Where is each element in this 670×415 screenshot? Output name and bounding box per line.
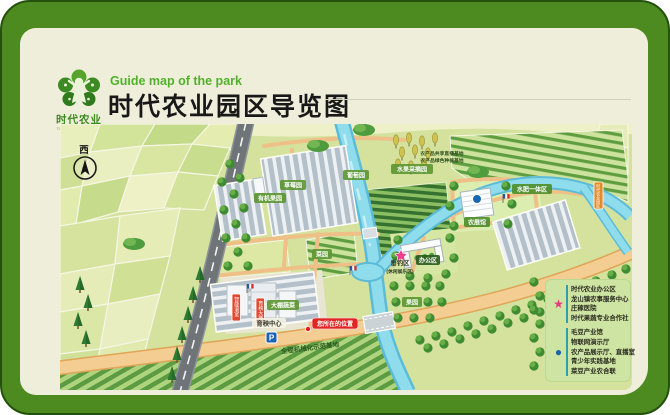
star-icon: ★: [551, 298, 566, 310]
you-are-here-label: 您所在的位置: [317, 320, 353, 328]
agri-hall-label: 农展馆: [467, 219, 486, 227]
agri-hall-building: [460, 188, 493, 219]
map-panel: 时代农业 TIME AGRICULTURE Guide map of the p…: [20, 28, 648, 395]
legend-dot-section: ● 毛豆产业馆 物联网演示厅 农产品展示厅、直播室 青少年实践基地 菜豆产业农合…: [551, 328, 627, 376]
page-title: 时代农业园区导览图: [108, 87, 351, 123]
logo: 时代农业 TIME AGRICULTURE: [52, 68, 106, 131]
park-map-frame: 时代农业 TIME AGRICULTURE Guide map of the p…: [0, 0, 670, 415]
dot-icon: ●: [551, 346, 566, 358]
parking-sign: P: [266, 332, 277, 343]
hall-dot-marker: [473, 195, 482, 204]
legend-item: 毛豆产业馆: [571, 328, 635, 338]
seedling-center-label: 育秧中心: [256, 319, 282, 328]
greenhouse-veg-label: 大棚蔬菜: [271, 302, 296, 310]
parking-label: P: [269, 334, 275, 343]
compass-west-label: 西: [79, 145, 89, 156]
fishing-sub-label: (休闲娱乐区): [386, 268, 414, 275]
foot-bridge: [362, 227, 377, 239]
fruit-picking-label: 水果采摘园: [397, 166, 427, 174]
legend-item: 物联网演示厅: [571, 338, 635, 348]
legend-item: 庄稼医院: [571, 304, 629, 314]
legend-star-section: ★ 时代农业办公区 龙山镇农事服务中心 庄稼医院 时代果蔬专业合作社: [551, 285, 627, 323]
page-subtitle: Guide map of the park: [110, 74, 242, 88]
legend-item: 龙山镇农事服务中心: [571, 295, 629, 305]
gate-sign: 时代农业园区: [594, 182, 603, 209]
organic-orchard-label: 有机果园: [258, 195, 282, 203]
legend-item: 菜豆产业农合联: [571, 367, 635, 377]
legend-item: 青少年实践基地: [571, 357, 635, 367]
grape-label: 葡萄园: [346, 172, 365, 180]
strawberry-label: 草莓园: [284, 182, 302, 190]
note-line1: 农产品共享直播基地: [419, 150, 463, 157]
fertigation-label: 水肥一体区: [517, 186, 547, 194]
fishing-pond: [352, 263, 384, 281]
smart-greenhouse-label: 智能温室: [233, 296, 239, 317]
gate-sign-label: 时代农业园区: [596, 183, 601, 208]
legend-item: 农产品展示厅、直播室: [571, 348, 635, 358]
orchard-label: 果园: [405, 299, 418, 307]
logo-emblem-icon: [56, 68, 102, 110]
note-line2: 农产品绿色种植基地: [419, 157, 463, 164]
fishing-label: 垂钓区: [391, 258, 411, 267]
header-divider: [325, 99, 631, 100]
map-legend: ★ 时代农业办公区 龙山镇农事服务中心 庄稼医院 时代果蔬专业合作社 ● 毛豆产…: [545, 279, 631, 382]
office-label: 办公区: [419, 257, 437, 265]
legend-item: 时代农业办公区: [571, 285, 629, 295]
legend-item: 时代果蔬专业合作社: [571, 314, 629, 324]
veg-garden-label: 菜园: [315, 251, 328, 259]
